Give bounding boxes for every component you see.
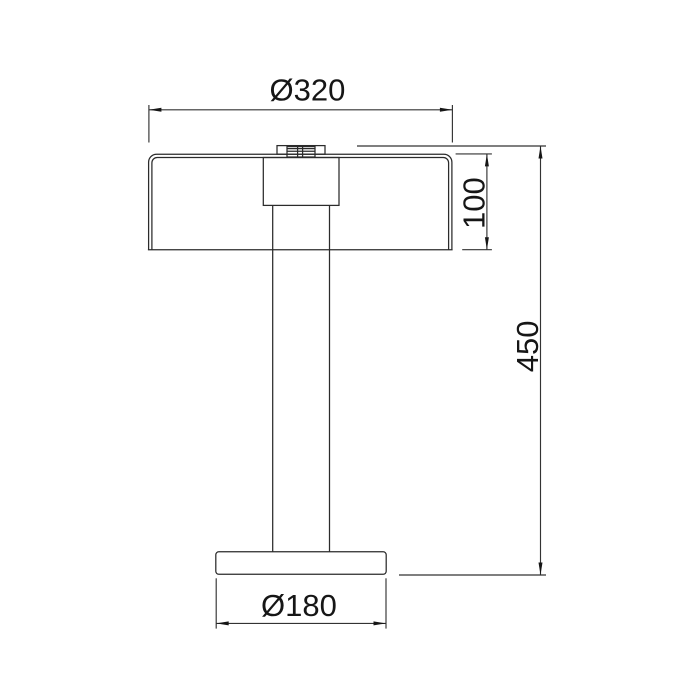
- svg-text:450: 450: [510, 321, 545, 373]
- svg-text:100: 100: [456, 177, 491, 229]
- svg-text:Ø180: Ø180: [261, 588, 337, 623]
- svg-text:Ø320: Ø320: [269, 73, 345, 108]
